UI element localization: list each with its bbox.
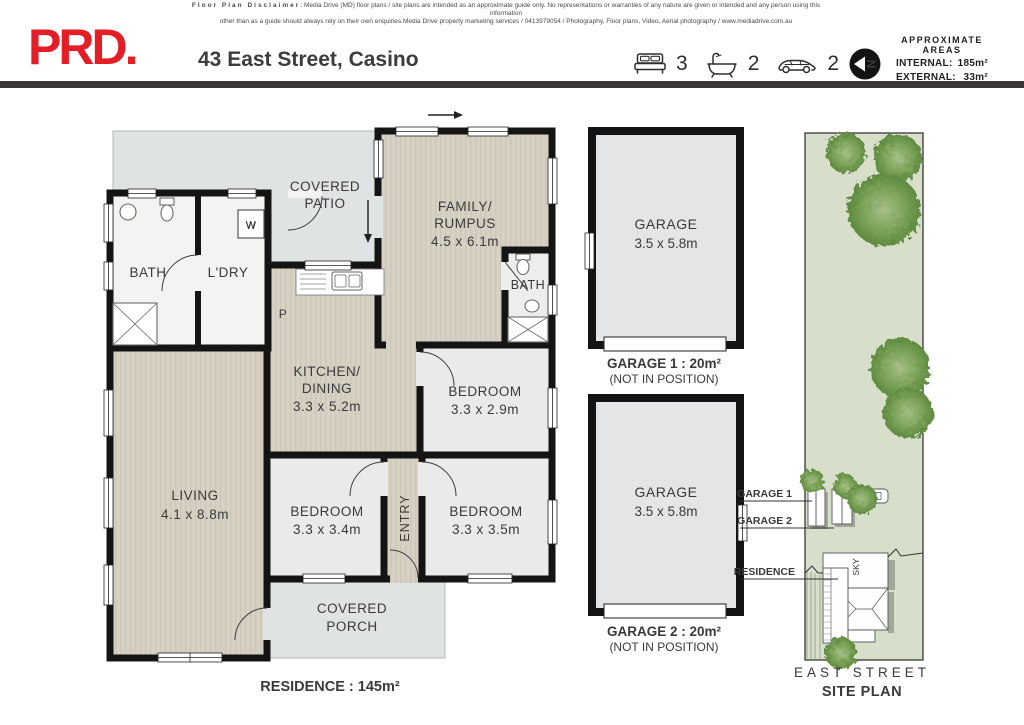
garage1-dims: 3.5 x 5.8m — [634, 236, 697, 251]
garage2-caption: GARAGE 2 : 20m² — [607, 624, 722, 639]
compass-letter: N — [865, 60, 879, 69]
bath2-label: BATH — [511, 278, 545, 292]
patio-label-1: COVERED — [290, 179, 360, 194]
garage-1-plan: GARAGE 3.5 x 5.8m GARAGE 1 : 20m² (NOT I… — [585, 131, 740, 386]
residence-floorplan: COVERED PATIO FAMILY/ RUMPUS 4.5 x 6.1m … — [104, 111, 557, 695]
patio-label-2: PATIO — [304, 196, 345, 211]
garage1-caption: GARAGE 1 : 20m² — [607, 356, 722, 371]
header-divider-bar — [0, 81, 1024, 88]
property-stats: 3 2 2 — [633, 50, 847, 78]
bed-icon — [633, 52, 667, 76]
living-kitchen-opening — [276, 339, 320, 351]
garage-2-plan: GARAGE 3.5 x 5.8m GARAGE 2 : 20m² (NOT I… — [592, 398, 747, 654]
family-label-2: RUMPUS — [434, 216, 496, 231]
residence-total-area: RESIDENCE : 145m² — [260, 679, 400, 695]
family-dims: 4.5 x 6.1m — [431, 234, 499, 249]
siteplan-garage2-label: GARAGE 2 — [737, 515, 792, 527]
bedroom1-label: BEDROOM — [448, 384, 521, 399]
ldry-label: L'DRY — [208, 265, 249, 280]
floorplan-flyer: Floor Plan Disclaimer: Media Drive (MD) … — [0, 0, 1024, 725]
entry-label: ENTRY — [398, 494, 412, 541]
living-dims: 4.1 x 8.8m — [161, 507, 229, 522]
car-icon — [776, 53, 818, 75]
garage1-note: (NOT IN POSITION) — [609, 372, 718, 386]
site-plan: SKY GARAGE 1 GARAGE 2 RESIDENCE — [734, 133, 933, 700]
sky-label: SKY — [851, 558, 861, 575]
areas-heading-1: APPROXIMATE — [896, 35, 988, 45]
kitchen-label-1: KITCHEN/ — [293, 364, 360, 379]
family-hall-opening — [386, 337, 416, 353]
internal-value: 185m² — [958, 58, 988, 69]
street-name: EAST STREET — [794, 665, 930, 680]
living-label: LIVING — [171, 488, 218, 503]
entry-arrow-right-icon — [428, 111, 463, 119]
approximate-areas: APPROXIMATE AREAS INTERNAL: 185m² EXTERN… — [896, 35, 988, 83]
disclaimer: Floor Plan Disclaimer: Media Drive (MD) … — [182, 2, 830, 26]
family-label-1: FAMILY/ — [438, 199, 492, 214]
garage1-name: GARAGE — [635, 216, 698, 232]
bedroom2-dims: 3.3 x 3.4m — [293, 522, 361, 537]
kitchen-family-opening — [412, 280, 428, 338]
siteplan-residence-label: RESIDENCE — [734, 566, 795, 578]
page-title: 43 East Street, Casino — [198, 48, 419, 72]
siteplan-garage1-label: GARAGE 1 — [737, 488, 792, 500]
internal-label: INTERNAL: — [896, 58, 953, 69]
cars-count: 2 — [827, 52, 847, 76]
garage2-dims: 3.5 x 5.8m — [634, 504, 697, 519]
bedroom3-dims: 3.3 x 3.5m — [452, 522, 520, 537]
areas-heading-2: AREAS — [896, 45, 988, 55]
plan-canvas: COVERED PATIO FAMILY/ RUMPUS 4.5 x 6.1m … — [0, 88, 1024, 725]
bedroom2-label: BEDROOM — [290, 504, 363, 519]
kitchen-bench — [296, 269, 384, 295]
prd-logo: PRD. — [28, 18, 135, 76]
disclaimer-line1: : Media Drive (MD) floor plans / site pl… — [300, 2, 820, 17]
disclaimer-line2: other than as a guide should always rely… — [182, 18, 830, 26]
pantry-label: P — [279, 307, 288, 321]
disclaimer-label: Floor Plan Disclaimer — [192, 2, 300, 9]
beds-count: 3 — [676, 52, 696, 76]
garage2-name: GARAGE — [635, 484, 698, 500]
kitchen-dims: 3.3 x 5.2m — [293, 399, 361, 414]
north-arrow-icon: N — [848, 47, 882, 81]
washer-letter: W — [246, 220, 256, 232]
bedroom-1 — [420, 345, 552, 456]
bedroom1-dims: 3.3 x 2.9m — [451, 402, 519, 417]
garage2-note: (NOT IN POSITION) — [609, 640, 718, 654]
kitchen-label-2: DINING — [302, 381, 352, 396]
siteplan-title: SITE PLAN — [822, 684, 902, 700]
porch-label-1: COVERED — [317, 601, 387, 616]
bedroom3-label: BEDROOM — [449, 504, 522, 519]
bathtub-icon — [705, 50, 739, 78]
porch-label-2: PORCH — [326, 619, 377, 634]
bath1-label: BATH — [129, 265, 166, 280]
baths-count: 2 — [748, 52, 768, 76]
